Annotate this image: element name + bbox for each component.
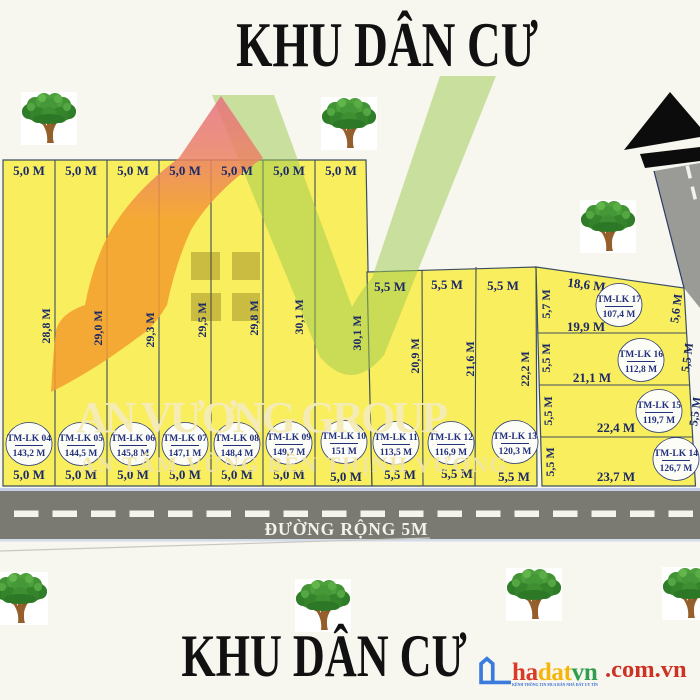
svg-text:5,0 M: 5,0 M xyxy=(117,163,149,178)
svg-text:ĐƯỜNG RỘNG 5M: ĐƯỜNG RỘNG 5M xyxy=(265,519,428,539)
svg-text:30,1 M: 30,1 M xyxy=(350,315,364,350)
svg-text:28,8 M: 28,8 M xyxy=(39,308,53,343)
svg-text:5,5 M: 5,5 M xyxy=(539,343,553,372)
svg-text:TM-LK 14: TM-LK 14 xyxy=(654,449,698,459)
svg-text:AN VƯƠNG GROUP: AN VƯƠNG GROUP xyxy=(76,393,448,442)
svg-text:.com.vn: .com.vn xyxy=(605,656,687,683)
svg-text:5,7 M: 5,7 M xyxy=(539,289,553,318)
svg-text:5,0 M: 5,0 M xyxy=(13,467,45,482)
svg-text:5,5 M: 5,5 M xyxy=(374,279,406,294)
svg-text:23,7 M: 23,7 M xyxy=(597,469,635,484)
svg-text:5,0 M: 5,0 M xyxy=(65,163,97,178)
svg-text:TM-LK 15: TM-LK 15 xyxy=(637,401,681,411)
svg-text:KÊNH THÔNG TIN MUA BÁN NHÀ ĐẤT: KÊNH THÔNG TIN MUA BÁN NHÀ ĐẤT UY TÍN xyxy=(512,682,598,687)
svg-text:5,5 M: 5,5 M xyxy=(543,447,557,476)
svg-text:TM-LK 04: TM-LK 04 xyxy=(7,434,51,444)
svg-text:TM-LK 16: TM-LK 16 xyxy=(619,350,663,360)
svg-text:20,9 M: 20,9 M xyxy=(408,338,422,373)
svg-text:22,4 M: 22,4 M xyxy=(597,420,635,435)
svg-text:hadatvn: hadatvn xyxy=(512,659,598,686)
svg-text:112,8 M: 112,8 M xyxy=(625,365,657,375)
svg-text:29,0 M: 29,0 M xyxy=(91,310,105,345)
svg-text:30,1 M: 30,1 M xyxy=(292,299,306,334)
svg-text:5,5 M: 5,5 M xyxy=(487,278,519,293)
svg-text:22,2 M: 22,2 M xyxy=(518,351,532,386)
svg-text:126,7 M: 126,7 M xyxy=(660,464,693,474)
svg-text:29,3 M: 29,3 M xyxy=(143,312,157,347)
svg-text:TM-LK 17: TM-LK 17 xyxy=(597,295,641,305)
svg-text:5,5 M: 5,5 M xyxy=(541,396,555,425)
svg-text:KHU DÂN CƯ: KHU DÂN CƯ xyxy=(236,9,538,81)
svg-text:KHU DÂN CƯ: KHU DÂN CƯ xyxy=(181,623,466,689)
svg-text:5,0 M: 5,0 M xyxy=(325,163,357,178)
svg-text:AN TÂM VỮNG BỀN THỊNH VƯỢNG: AN TÂM VỮNG BỀN THỊNH VƯỢNG xyxy=(80,452,507,477)
svg-text:119,7 M: 119,7 M xyxy=(643,416,675,426)
svg-text:5,0 M: 5,0 M xyxy=(13,163,45,178)
svg-text:143,2 M: 143,2 M xyxy=(13,449,46,459)
svg-text:5,5 M: 5,5 M xyxy=(431,277,463,292)
svg-text:21,6 M: 21,6 M xyxy=(463,341,477,376)
svg-text:5,0 M: 5,0 M xyxy=(169,163,201,178)
svg-text:29,5 M: 29,5 M xyxy=(195,302,209,337)
svg-text:TM-LK 13: TM-LK 13 xyxy=(493,432,537,442)
svg-text:21,1 M: 21,1 M xyxy=(573,370,611,385)
svg-text:29,8 M: 29,8 M xyxy=(247,300,261,335)
svg-text:5,0 M: 5,0 M xyxy=(221,163,253,178)
svg-text:19,9 M: 19,9 M xyxy=(567,319,605,334)
svg-text:107,4 M: 107,4 M xyxy=(603,310,636,320)
svg-text:5,0 M: 5,0 M xyxy=(273,163,305,178)
